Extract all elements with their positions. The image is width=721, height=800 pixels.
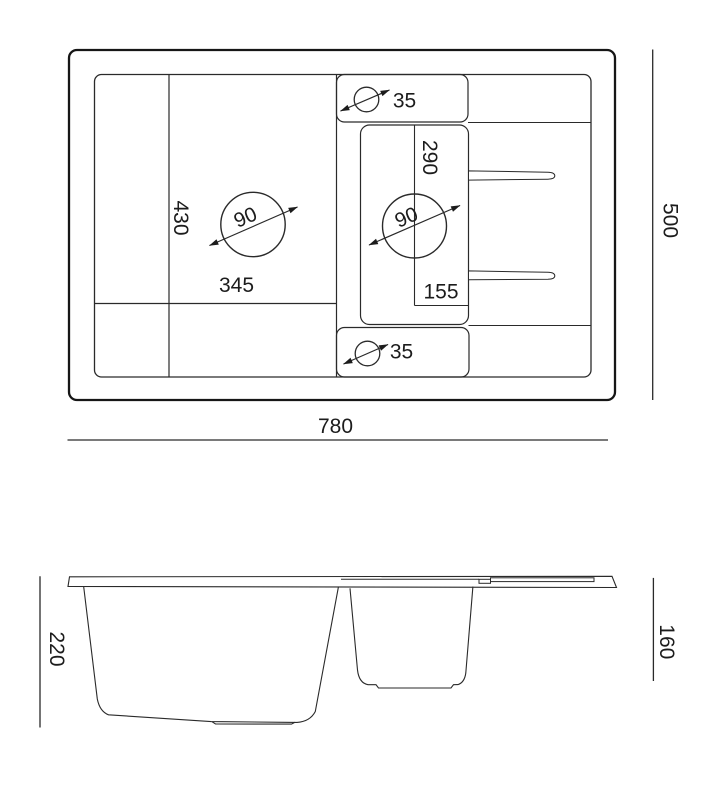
svg-text:290: 290 <box>418 140 441 175</box>
svg-text:90: 90 <box>230 202 260 232</box>
svg-text:780: 780 <box>318 415 353 438</box>
svg-text:345: 345 <box>219 274 254 297</box>
svg-text:35: 35 <box>390 341 413 364</box>
svg-text:90: 90 <box>391 202 421 232</box>
svg-text:220: 220 <box>45 631 68 666</box>
svg-text:430: 430 <box>169 200 192 235</box>
svg-text:500: 500 <box>659 203 682 238</box>
svg-text:35: 35 <box>393 90 416 113</box>
svg-text:160: 160 <box>655 624 678 659</box>
svg-text:155: 155 <box>423 281 458 304</box>
